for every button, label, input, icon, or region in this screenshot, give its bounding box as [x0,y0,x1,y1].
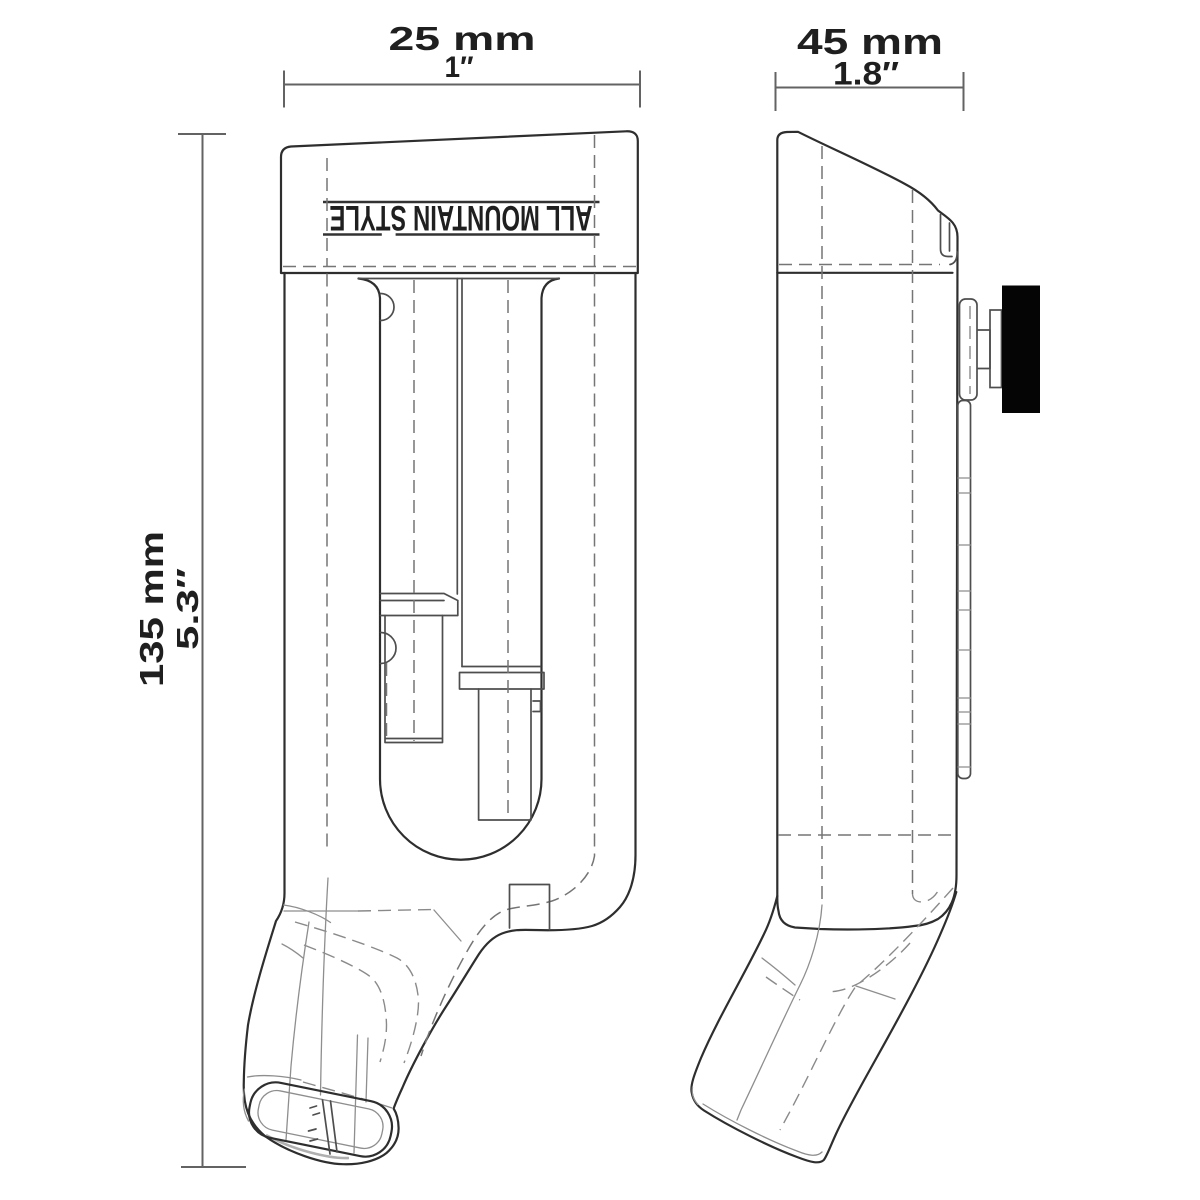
svg-text:5.3″: 5.3″ [170,568,205,650]
svg-text:ALL MOUNTAIN STYLE: ALL MOUNTAIN STYLE [330,198,593,237]
svg-text:135 mm: 135 mm [133,531,170,687]
svg-text:1.8″: 1.8″ [833,56,899,92]
svg-text:1″: 1″ [445,51,474,84]
